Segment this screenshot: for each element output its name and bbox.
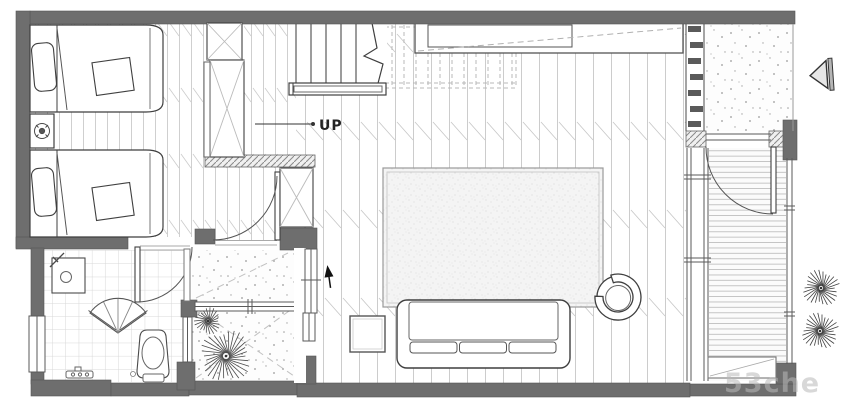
sofa-cushion <box>410 342 457 353</box>
stair-up-label: UP <box>319 118 343 134</box>
side-table <box>350 316 385 352</box>
wall-pier-bedroom-door-left <box>195 229 215 244</box>
wall-bathroom-left-upper <box>31 248 44 316</box>
floor-plan-drawing: UP <box>0 0 850 410</box>
wall-top <box>30 11 795 24</box>
sofa-cushion <box>460 342 507 353</box>
blanket <box>92 58 134 96</box>
sofa <box>397 300 570 368</box>
nightstand <box>30 114 54 148</box>
bathroom-right-wall <box>184 249 190 301</box>
blanket <box>92 183 134 221</box>
stair-hall-floor <box>244 24 296 155</box>
pillow <box>31 42 57 92</box>
wall-pier-courtyard-southwest <box>177 362 195 390</box>
brick-pier <box>686 24 704 131</box>
entry-arrow-marker <box>809 58 834 92</box>
courtyard-floor <box>192 250 304 382</box>
hatch-balcony-jamb-left <box>686 131 706 147</box>
watermark: 53che <box>724 368 820 399</box>
wall-bottom-left-corner <box>31 380 111 396</box>
bathroom-courtyard-window <box>183 317 192 362</box>
hall-closet <box>280 168 313 227</box>
hatch-balcony-jamb-right <box>769 131 783 147</box>
plant-outside-lower <box>802 313 838 348</box>
wardrobe <box>204 23 244 157</box>
plant-outside-upper <box>803 270 839 305</box>
terrace-floor <box>705 24 793 131</box>
bed-2 <box>30 150 163 237</box>
floor-plan-canvas: UP <box>0 0 850 410</box>
pillow <box>31 167 57 217</box>
living-balcony-glazing <box>684 148 711 381</box>
bed-1 <box>30 25 163 112</box>
wall-bedroom-bathroom-divider <box>16 237 128 249</box>
stair-handrail <box>289 83 386 95</box>
sofa-cushion <box>509 342 556 353</box>
wall-living-bottom <box>297 383 690 397</box>
wall-balcony-column <box>783 120 797 160</box>
bathroom-left-window <box>29 316 45 372</box>
top-long-cabinet <box>415 23 683 53</box>
bathroom-sink <box>50 253 85 293</box>
wall-left <box>16 11 30 248</box>
wall-pier-bedroom-door-right <box>280 228 317 250</box>
area-rug <box>383 168 603 307</box>
wall-courtyard-bottom <box>189 381 297 395</box>
corridor-floor <box>205 167 280 240</box>
